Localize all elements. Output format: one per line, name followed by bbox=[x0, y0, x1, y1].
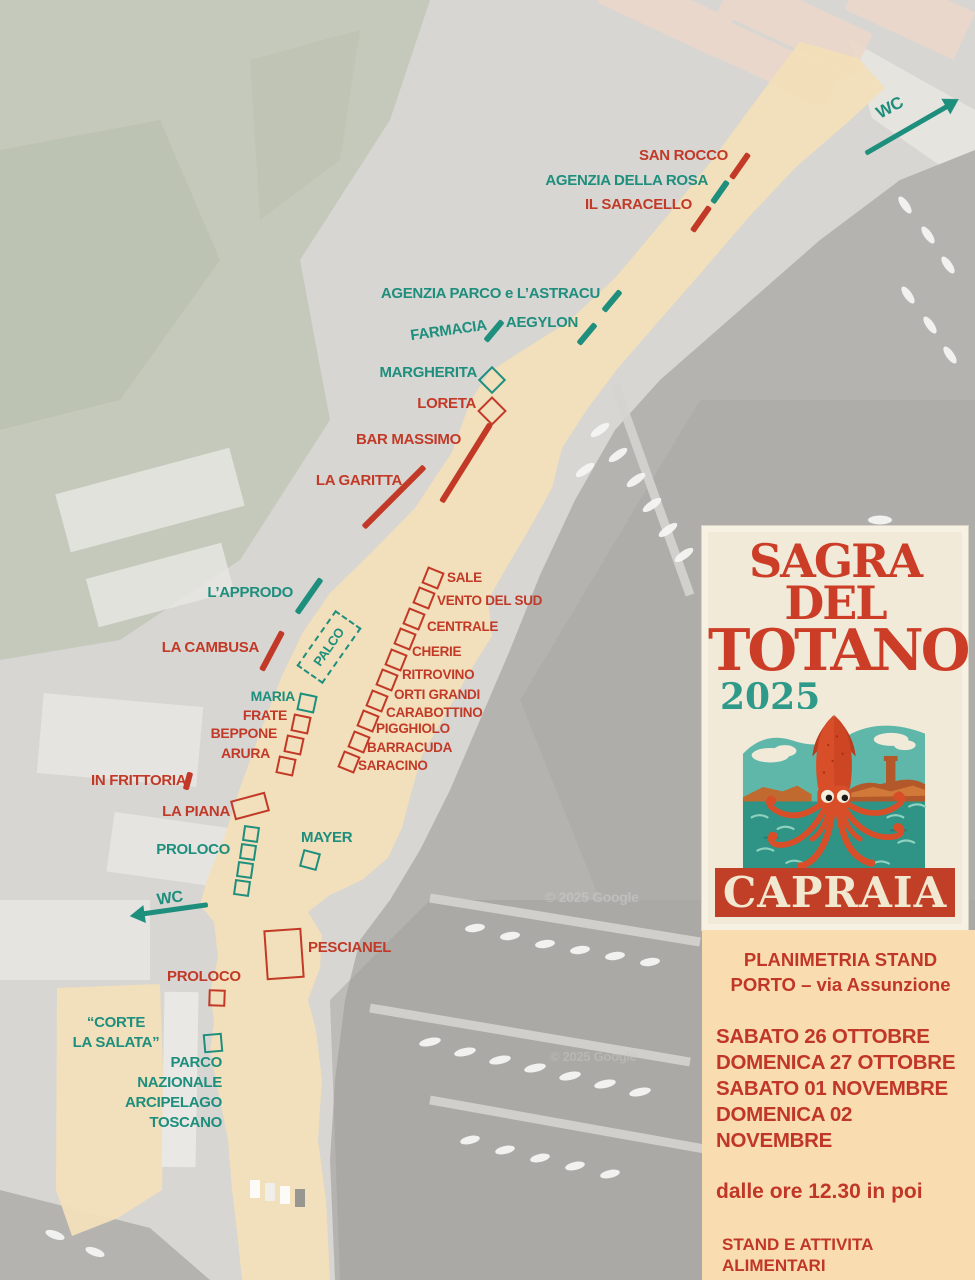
la-cambusa-label: LA CAMBUSA bbox=[162, 640, 259, 656]
ritrovino-label: RITROVINO bbox=[402, 668, 474, 682]
legend-item-food: STAND E ATTIVITA ALIMENTARI bbox=[722, 1234, 965, 1277]
agenzia-parco-label: AGENZIA PARCO e L’ASTRACU bbox=[381, 286, 600, 302]
beppone-stand-marker bbox=[283, 734, 304, 755]
centrale-label: CENTRALE bbox=[427, 620, 498, 634]
arura-label: ARURA bbox=[221, 746, 270, 761]
saracino-label: SARACINO bbox=[358, 759, 428, 773]
bar-massimo-label: BAR MASSIMO bbox=[356, 432, 461, 448]
poster-city: CAPRAIA bbox=[723, 868, 947, 917]
event-date: DOMENICA 02 NOVEMBRE bbox=[716, 1102, 965, 1154]
parco-nazionale-label-line1: PARCO bbox=[170, 1055, 222, 1071]
panel-heading-line1: PLANIMETRIA STAND bbox=[716, 948, 965, 973]
parco-nazionale-label-line3: ARCIPELAGO bbox=[125, 1095, 222, 1111]
event-dates: SABATO 26 OTTOBRE DOMENICA 27 OTTOBRE SA… bbox=[716, 1024, 965, 1154]
arura-stand-marker bbox=[275, 755, 296, 776]
il-saracello-label: IL SARACELLO bbox=[585, 197, 692, 213]
event-date: SABATO 01 NOVEMBRE bbox=[716, 1076, 965, 1102]
la-garitta-label: LA GARITTA bbox=[316, 473, 402, 489]
mayer-label: MAYER bbox=[301, 830, 352, 846]
legend-item-food-line1: STAND E ATTIVITA bbox=[722, 1234, 965, 1255]
agenzia-della-rosa-label: AGENZIA DELLA ROSA bbox=[545, 173, 708, 189]
loreta-label: LORETA bbox=[417, 396, 476, 412]
corte-la-salata-label-line2: LA SALATA” bbox=[73, 1035, 160, 1051]
parco-nazionale-stand-marker bbox=[203, 1033, 224, 1054]
parco-nazionale-label-line4: TOSCANO bbox=[149, 1115, 222, 1131]
google-watermark-1: © 2025 Google bbox=[545, 890, 639, 905]
maria-label: MARIA bbox=[251, 689, 295, 704]
pigghiolo-label: PIGGHIOLO bbox=[376, 722, 450, 736]
orti-grandi-label: ORTI GRANDI bbox=[394, 688, 480, 702]
parco-nazionale-label-line2: NAZIONALE bbox=[137, 1075, 222, 1091]
poster-title-line1: SAGRA DEL bbox=[708, 540, 962, 625]
poster-city-band: CAPRAIA bbox=[715, 868, 955, 917]
legend-item-food-line2: ALIMENTARI bbox=[722, 1255, 965, 1276]
event-date: SABATO 26 OTTOBRE bbox=[716, 1024, 965, 1050]
planimetria-map: SAN ROCCOAGENZIA DELLA ROSAIL SARACELLOA… bbox=[0, 0, 975, 1280]
time-note: dalle ore 12.30 in poi bbox=[716, 1180, 965, 1204]
poster-title-line2: TOTANO bbox=[708, 625, 962, 677]
google-watermark-2: © 2025 Google bbox=[550, 1050, 637, 1064]
proloco-north-stand-4-marker bbox=[233, 879, 251, 897]
proloco-north-label: PROLOCO bbox=[156, 842, 230, 858]
carabottino-label: CARABOTTINO bbox=[386, 706, 482, 720]
event-poster: SAGRA DEL TOTANO 2025 bbox=[702, 526, 968, 930]
proloco-south-stand-marker bbox=[208, 989, 226, 1007]
event-date: DOMENICA 27 OTTOBRE bbox=[716, 1050, 965, 1076]
margherita-label: MARGHERITA bbox=[379, 365, 477, 381]
in-frittoria-label: IN FRITTORIA bbox=[91, 773, 186, 789]
pescianel-label: PESCIANEL bbox=[308, 940, 391, 956]
frate-label: FRATE bbox=[243, 708, 287, 723]
legend: STAND E ATTIVITA ALIMENTARI STAND E ATTI… bbox=[716, 1234, 965, 1280]
proloco-north-stand-2-marker bbox=[239, 843, 257, 861]
maria-stand-marker bbox=[296, 692, 317, 713]
proloco-south-label: PROLOCO bbox=[167, 969, 241, 985]
wc-left-arrow-head bbox=[128, 905, 145, 925]
pescianel-stand-marker bbox=[263, 928, 304, 981]
aegylon-label: AEGYLON bbox=[506, 315, 578, 331]
corte-la-salata-label-line1: “CORTE bbox=[87, 1015, 145, 1031]
san-rocco-label: SAN ROCCO bbox=[639, 148, 728, 164]
proloco-north-stand-3-marker bbox=[236, 861, 254, 879]
proloco-north-stand-1-marker bbox=[242, 825, 260, 843]
panel-heading-line2: PORTO – via Assunzione bbox=[716, 973, 965, 998]
barracuda-label: BARRACUDA bbox=[367, 741, 452, 755]
l-approdo-label: L’APPRODO bbox=[207, 585, 293, 601]
la-piana-label: LA PIANA bbox=[162, 804, 230, 820]
beppone-label: BEPPONE bbox=[211, 726, 277, 741]
squid-illustration bbox=[708, 709, 960, 868]
vento-del-sud-label: VENTO DEL SUD bbox=[437, 594, 542, 608]
sale-label: SALE bbox=[447, 571, 482, 585]
cherie-label: CHERIE bbox=[412, 645, 461, 659]
panel-heading: PLANIMETRIA STAND PORTO – via Assunzione bbox=[716, 948, 965, 998]
poster-title: SAGRA DEL TOTANO bbox=[708, 540, 962, 677]
info-panel: PLANIMETRIA STAND PORTO – via Assunzione… bbox=[702, 930, 975, 1280]
frate-stand-marker bbox=[290, 713, 311, 734]
